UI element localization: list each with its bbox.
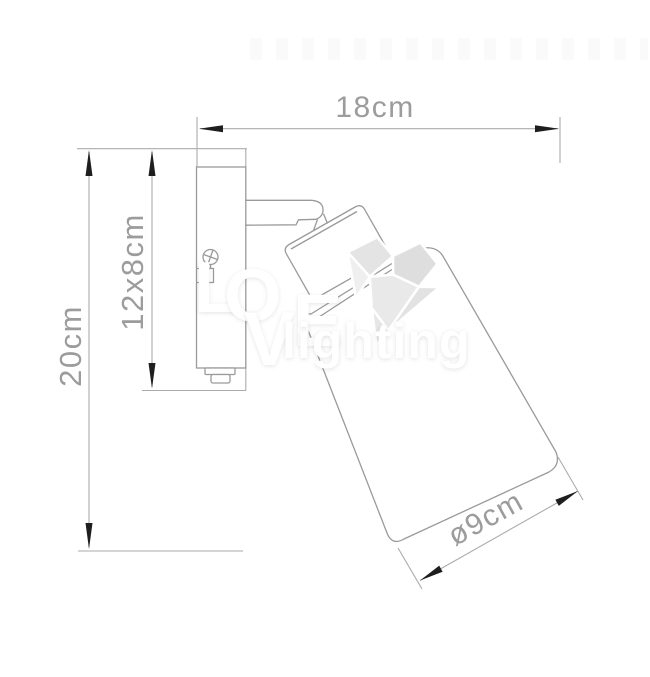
wall-spotlight-drawing <box>197 167 558 541</box>
dimension-label-width: 18cm <box>335 91 414 125</box>
extension-line-shade-left <box>398 548 422 589</box>
switch-base <box>205 368 235 375</box>
width-arrowhead-right <box>535 125 559 132</box>
height-arrowhead-up <box>86 150 93 176</box>
pivot-stem-2 <box>324 214 328 224</box>
power-switch <box>205 368 235 383</box>
line-art-drawing <box>0 0 650 677</box>
technical-drawing-canvas: L O V E lighting 18cm 20cm 12x8cm ø9cm <box>0 0 650 677</box>
plate-arrowhead-up <box>149 150 156 176</box>
height-arrowhead-down <box>86 523 93 549</box>
width-arrowhead-left <box>199 125 223 132</box>
diameter-arrowhead-right <box>555 491 578 506</box>
dimension-label-backplate: 12x8cm <box>115 213 151 331</box>
switch-knob <box>211 375 230 384</box>
mounting-arm <box>245 200 323 225</box>
extension-line-shade-right <box>558 457 583 500</box>
diameter-arrowhead-left <box>420 566 443 581</box>
dimension-label-height: 20cm <box>53 305 89 387</box>
wall-plate <box>197 167 246 368</box>
plate-arrowhead-down <box>149 363 156 389</box>
